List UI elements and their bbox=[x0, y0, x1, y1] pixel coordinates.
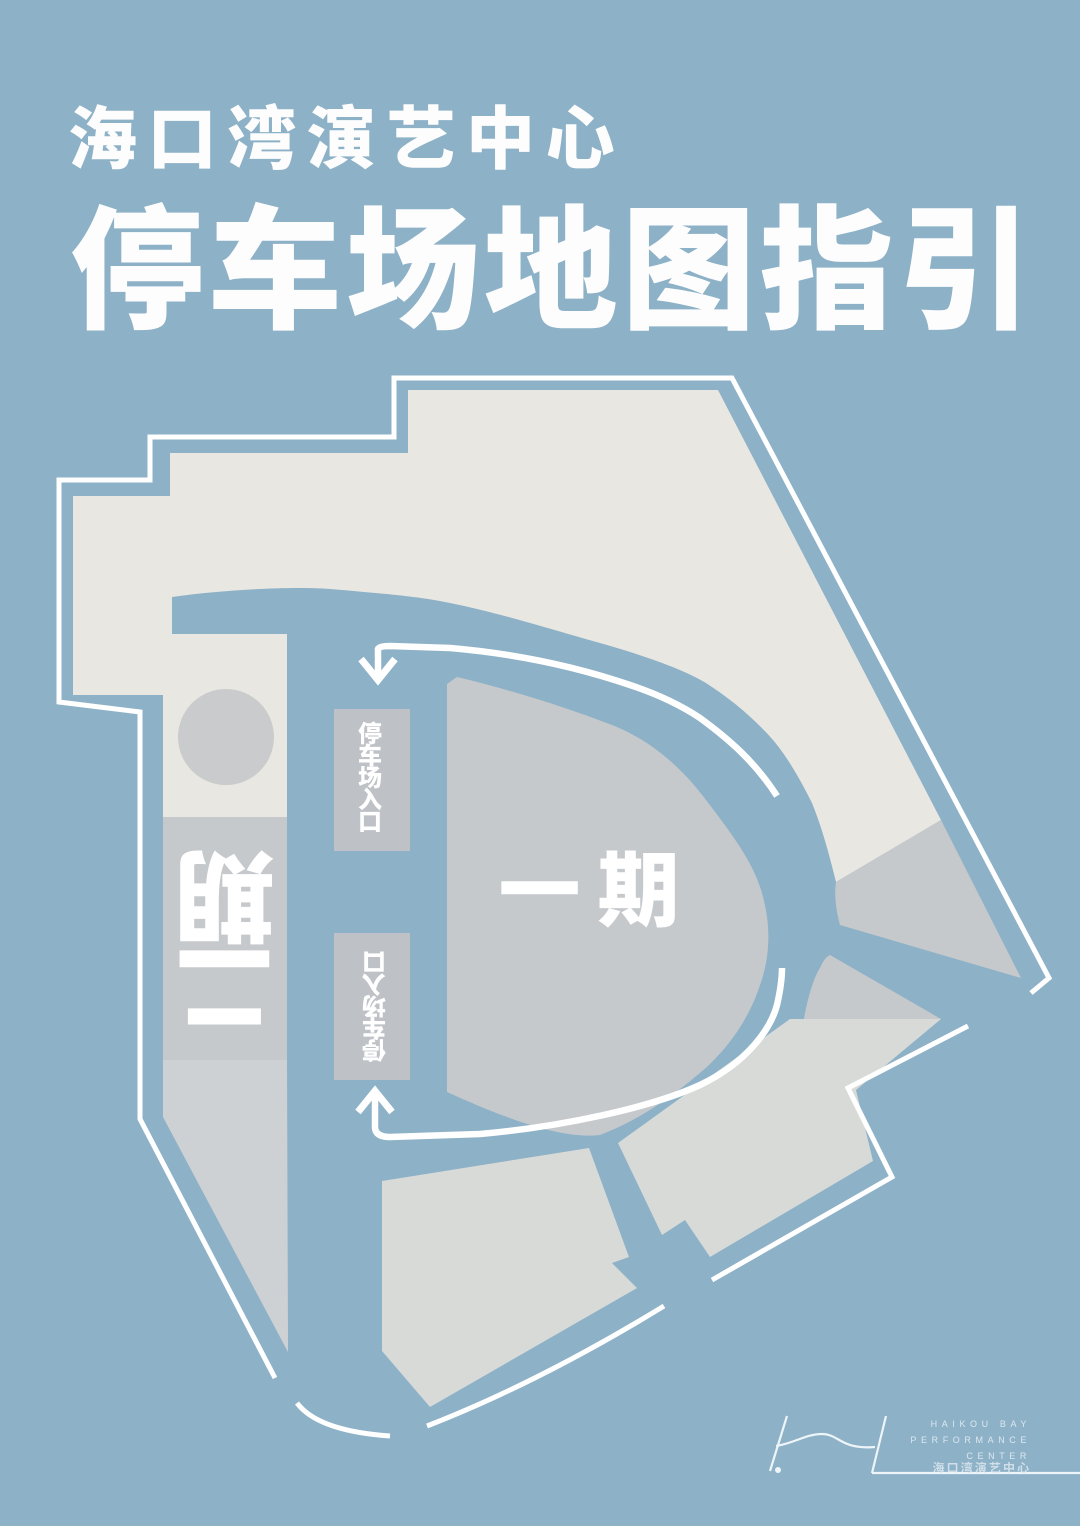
svg-text:HAIKOU BAY: HAIKOU BAY bbox=[931, 1419, 1031, 1429]
svg-text:PERFORMANCE: PERFORMANCE bbox=[910, 1435, 1031, 1445]
svg-text:CENTER: CENTER bbox=[966, 1451, 1031, 1461]
